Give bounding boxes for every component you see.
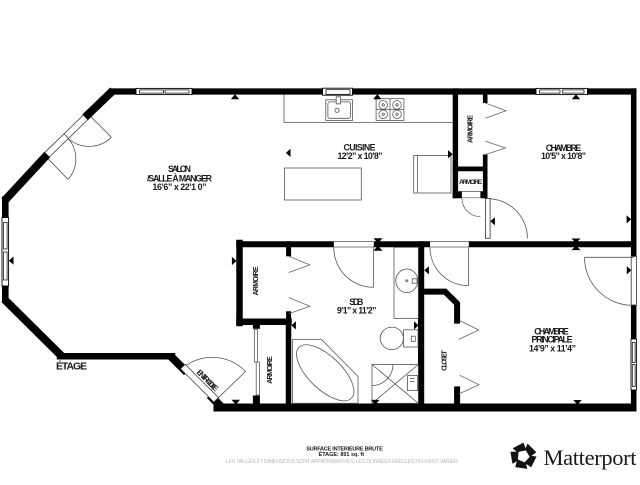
svg-text:10’5” x 10’8”: 10’5” x 10’8” xyxy=(541,151,586,161)
svg-text:14’9” x 11’4”: 14’9” x 11’4” xyxy=(529,344,576,354)
svg-text:Matterport: Matterport xyxy=(544,445,638,470)
svg-text:ARMOIRE: ARMOIRE xyxy=(253,266,260,295)
svg-text:SALON: SALON xyxy=(168,164,191,174)
svg-text:ARMOIRE: ARMOIRE xyxy=(468,115,475,143)
svg-text:ARMOIRE: ARMOIRE xyxy=(459,179,483,186)
svg-text:12’2” x 10’8”: 12’2” x 10’8” xyxy=(338,151,383,161)
svg-text:16’6” x 22’1 0”: 16’6” x 22’1 0” xyxy=(153,182,207,192)
svg-text:CLOSET: CLOSET xyxy=(442,350,449,371)
svg-text:LES TAILLES ET DIMENSIONS SONT: LES TAILLES ET DIMENSIONS SONT APPROXIMA… xyxy=(226,458,458,465)
svg-text:ARMOIRE: ARMOIRE xyxy=(267,356,274,384)
svg-text:9’1” x 11’2”: 9’1” x 11’2” xyxy=(337,306,377,316)
svg-text:ÉTAGE: ÉTAGE xyxy=(56,360,87,373)
svg-text:ÉTAGE: 891 sq. ft: ÉTAGE: 891 sq. ft xyxy=(319,450,365,458)
